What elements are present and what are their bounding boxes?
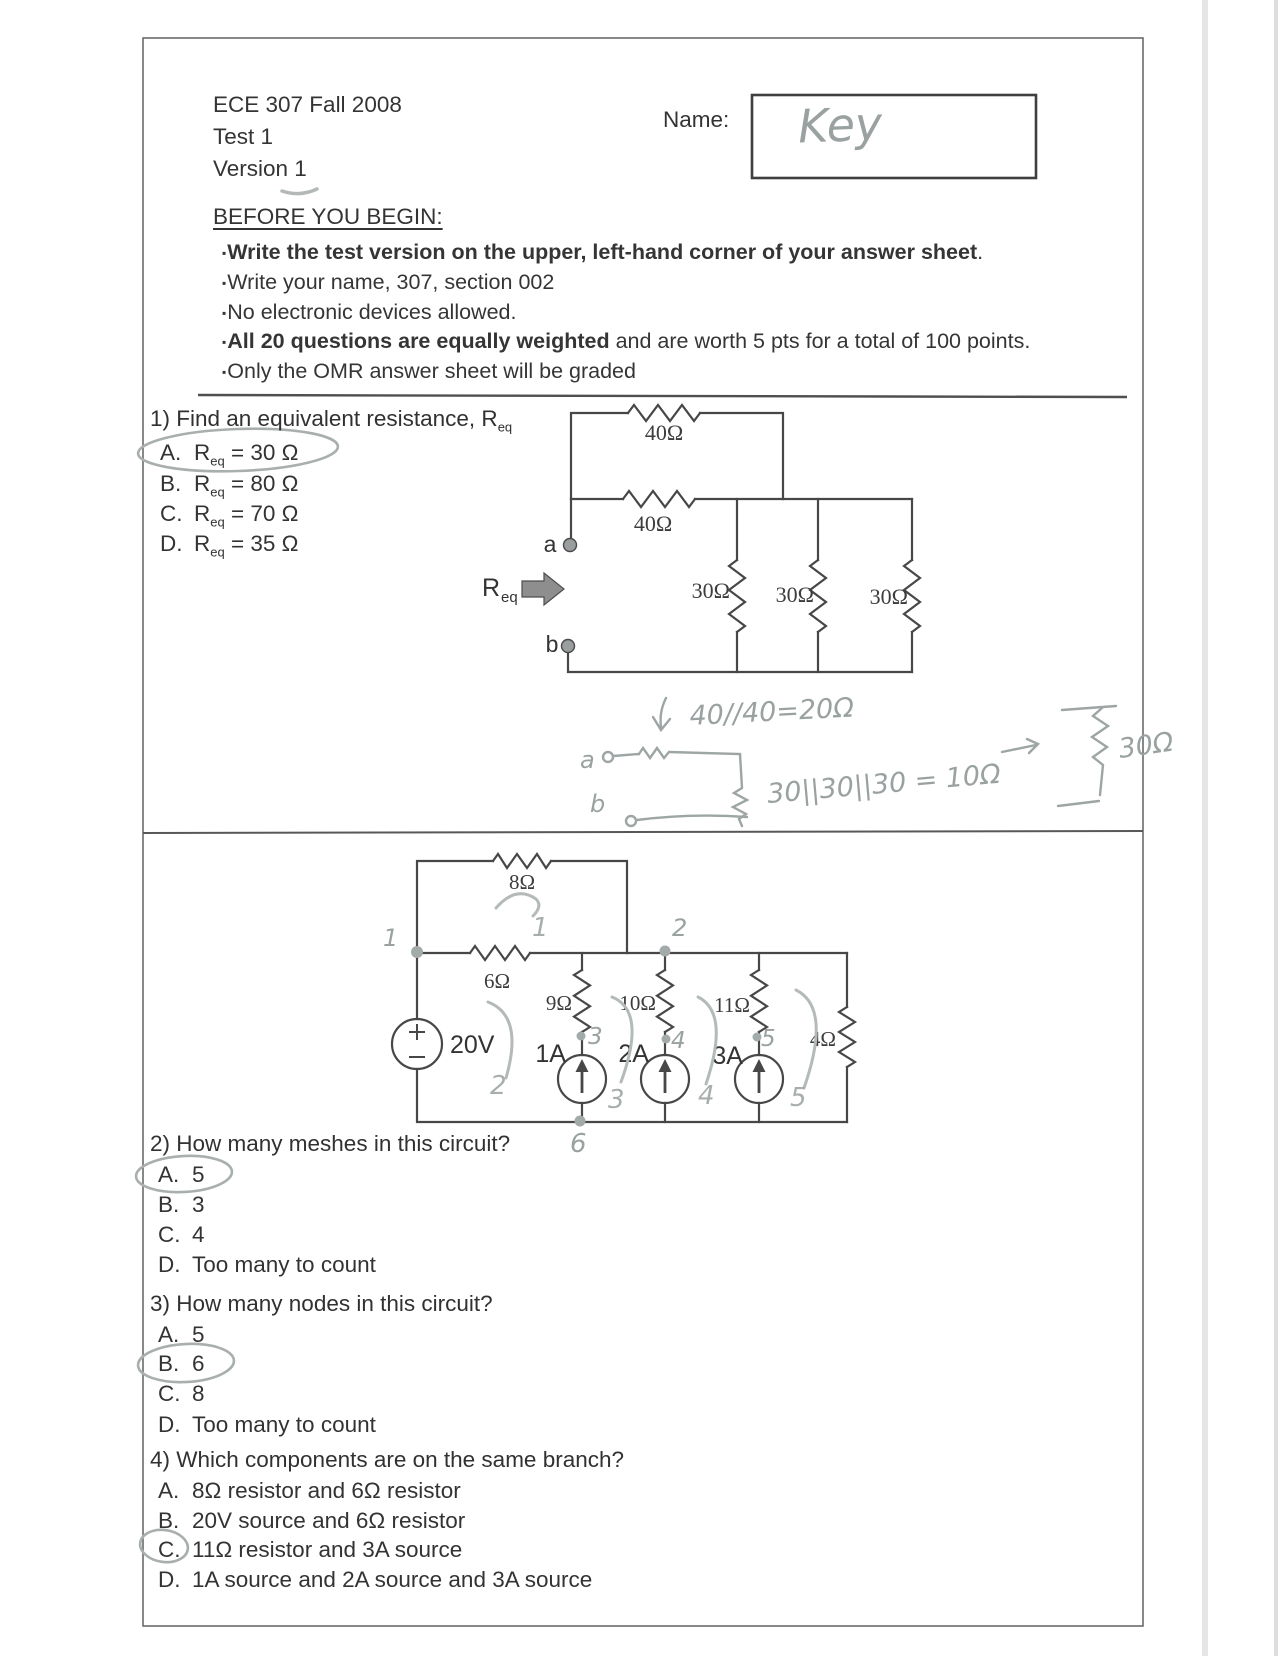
resistor-9-label: 9Ω xyxy=(546,991,572,1015)
resistor-40-top-label: 40Ω xyxy=(645,420,683,445)
q2-option-c: C.4 xyxy=(158,1222,205,1248)
instruction-bullet-1: ▪Write the test version on the upper, le… xyxy=(222,238,1030,268)
mesh-number-1: 1 xyxy=(532,913,549,943)
name-value-handwriting: Key xyxy=(797,97,883,154)
instruction-bullet-3: ▪No electronic devices allowed. xyxy=(222,298,1030,328)
q4-text: 4) Which components are on the same bran… xyxy=(150,1447,624,1473)
instruction-bullet-4: ▪All 20 questions are equally weighted a… xyxy=(222,327,1030,357)
q2-text: 2) How many meshes in this circuit? xyxy=(150,1131,510,1157)
q3-option-c: C.8 xyxy=(158,1381,205,1407)
scan-edge-strip-2 xyxy=(1274,0,1278,1656)
mesh-number-5: 5 xyxy=(790,1083,807,1113)
instructions-list: ▪Write the test version on the upper, le… xyxy=(222,238,1030,387)
bullet-icon: ▪ xyxy=(222,365,226,379)
node-number-2: 2 xyxy=(672,914,687,942)
q3-option-a: A.5 xyxy=(158,1322,205,1348)
voltage-source-20v-label: 20V xyxy=(450,1031,495,1059)
q4-option-a: A.8Ω resistor and 6Ω resistor xyxy=(158,1478,461,1504)
bullet-icon: ▪ xyxy=(222,335,226,349)
q1-option-a: A.Req = 30 Ω xyxy=(160,440,298,469)
current-source-2a-label: 2A xyxy=(618,1040,649,1068)
node-number-5: 5 xyxy=(761,1026,776,1052)
scan-edge-strip xyxy=(1202,0,1208,1656)
test-version: Version 1 xyxy=(213,156,307,182)
resistor-6-label: 6Ω xyxy=(484,969,510,993)
q1-option-d: D.Req = 35 Ω xyxy=(160,531,298,560)
node-number-6: 6 xyxy=(570,1129,587,1159)
req-label-sub: eq xyxy=(501,589,518,606)
q1-option-b: B.Req = 80 Ω xyxy=(160,471,298,500)
mesh-number-2: 2 xyxy=(490,1071,507,1101)
q4-option-c: C.11Ω resistor and 3A source xyxy=(158,1537,462,1563)
bullet-icon: ▪ xyxy=(222,306,226,320)
instructions-heading: BEFORE YOU BEGIN: xyxy=(213,204,443,230)
resistor-40-mid-label: 40Ω xyxy=(634,511,672,536)
q2-option-b: B.3 xyxy=(158,1192,205,1218)
bullet-icon: ▪ xyxy=(222,276,226,290)
current-source-3a-label: 3A xyxy=(712,1042,743,1070)
handwork-a-label: a xyxy=(580,746,595,774)
mesh-number-4: 4 xyxy=(698,1081,715,1111)
q1-option-c: C.Req = 70 Ω xyxy=(160,501,298,530)
resistor-30-2-label: 30Ω xyxy=(776,582,814,607)
instruction-bullet-2: ▪Write your name, 307, section 002 xyxy=(222,268,1030,298)
current-source-1a-label: 1A xyxy=(535,1040,566,1068)
q3-option-b: B.6 xyxy=(158,1351,205,1377)
terminal-a-dot xyxy=(564,539,577,552)
req-label: R xyxy=(482,574,500,602)
resistor-11-label: 11Ω xyxy=(714,993,750,1017)
handwork-result-label: 30Ω xyxy=(1117,727,1176,765)
terminal-b-label: b xyxy=(546,631,559,657)
node-number-4: 4 xyxy=(671,1028,686,1054)
instruction-bullet-5: ▪Only the OMR answer sheet will be grade… xyxy=(222,357,1030,387)
q4-option-d: D.1A source and 2A source and 3A source xyxy=(158,1567,592,1593)
q4-option-b: B.20V source and 6Ω resistor xyxy=(158,1508,465,1534)
name-label: Name: xyxy=(663,107,729,133)
terminal-a-label: a xyxy=(544,531,557,557)
q3-text: 3) How many nodes in this circuit? xyxy=(150,1291,493,1317)
resistor-30-3-label: 30Ω xyxy=(870,584,908,609)
q2-option-d: D.Too many to count xyxy=(158,1252,376,1278)
resistor-10-label: 10Ω xyxy=(619,991,656,1015)
q3-option-d: D.Too many to count xyxy=(158,1412,376,1438)
bullet-icon: ▪ xyxy=(222,246,226,260)
resistor-30-1-label: 30Ω xyxy=(692,578,730,603)
course-title: ECE 307 Fall 2008 xyxy=(213,92,402,118)
mesh-number-3: 3 xyxy=(608,1085,625,1115)
handwork-b-label: b xyxy=(590,790,605,818)
terminal-b-dot xyxy=(562,640,575,653)
resistor-8-label: 8Ω xyxy=(509,870,535,894)
test-number: Test 1 xyxy=(213,124,273,150)
q1-text: 1) Find an equivalent resistance, Req xyxy=(150,406,512,435)
scanned-test-page: 40Ω 40Ω 30Ω 30Ω 30Ω a b R eq 40//40=20Ω … xyxy=(0,0,1280,1656)
q2-option-a: A.5 xyxy=(158,1162,205,1188)
node-number-1: 1 xyxy=(383,924,398,952)
node-number-3: 3 xyxy=(588,1024,603,1050)
